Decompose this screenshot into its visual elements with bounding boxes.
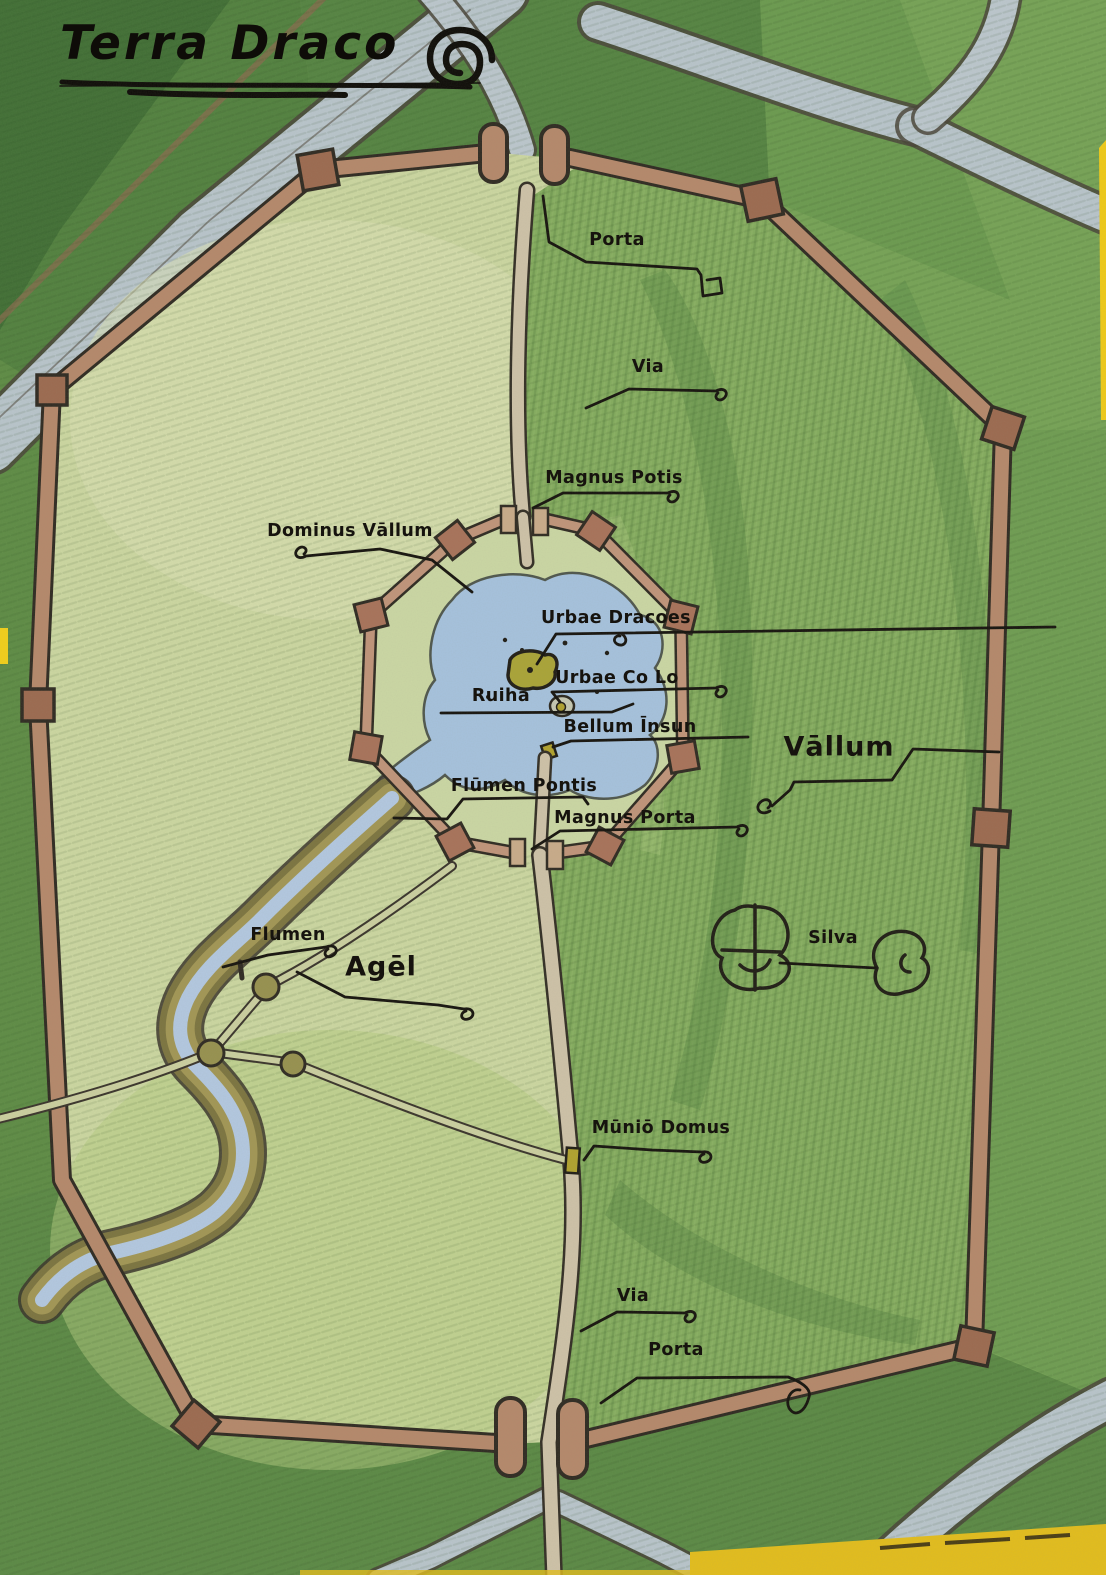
label-bellum-insun: Bellum Īnsun (563, 717, 696, 737)
label-magnus-porta: Magnus Porta (554, 808, 696, 828)
label-munio-domus: Mūniō Domus (592, 1118, 731, 1138)
label-agel: Agēl (345, 952, 417, 983)
label-via-north: Via (632, 357, 664, 377)
label-dominus-vallum: Dominus Vāllum (267, 521, 433, 541)
label-magnus-potis: Magnus Potis (545, 468, 683, 488)
label-porta-north: Porta (589, 230, 645, 250)
label-flumen: Flumen (250, 925, 325, 945)
label-ruiha: Ruiha (472, 686, 530, 706)
label-flumen-pontis: Flūmen Pontis (451, 776, 597, 796)
label-via-south: Via (617, 1286, 649, 1306)
map-title: Terra Draco (60, 16, 399, 71)
label-vallum: Vāllum (784, 732, 895, 763)
label-silva: Silva (808, 928, 858, 948)
label-urbae-co-lo: Urbae Co Lo (555, 668, 679, 688)
label-porta-south: Porta (648, 1340, 704, 1360)
label-urbae-dracoes: Urbae Dracoes (541, 608, 691, 628)
terra-draco-map: Terra Draco Porta Via Magnus Potis Domin… (0, 0, 1106, 1575)
